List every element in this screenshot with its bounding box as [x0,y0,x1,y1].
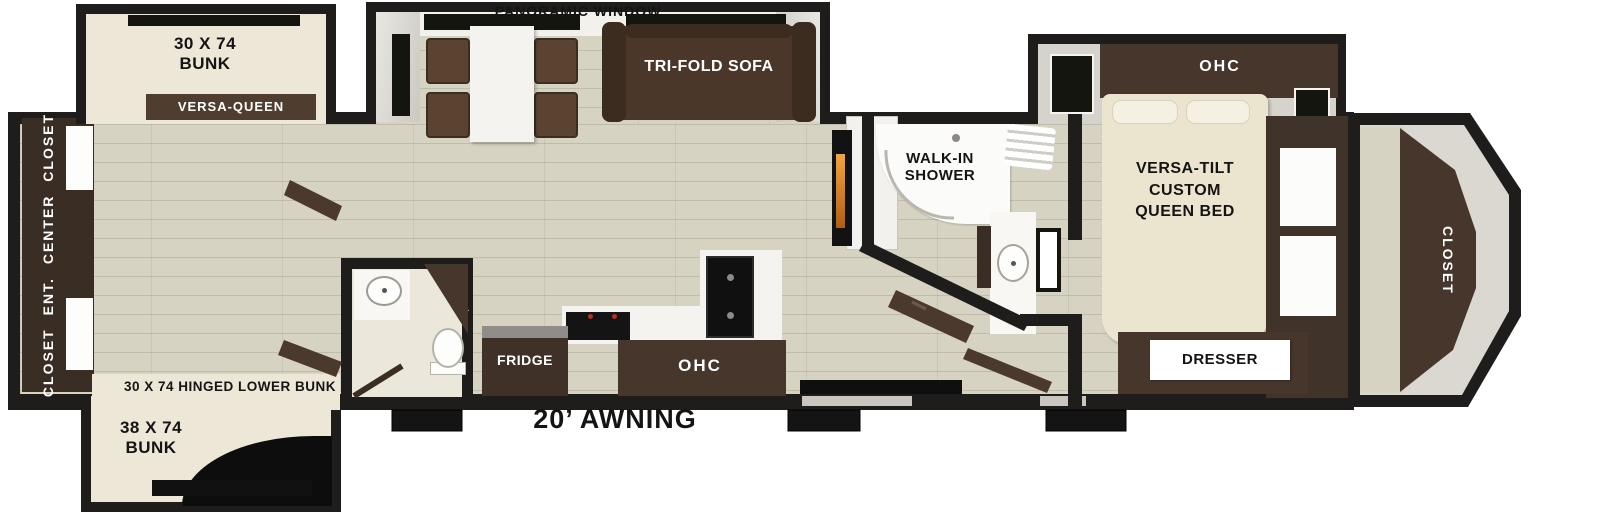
bunk-wedge-top [284,180,342,221]
bath-door [354,366,402,396]
front-closet-label: CLOSET [1432,200,1456,320]
bunk-wedge-bottom [278,340,342,377]
step-bench-2 [963,348,1052,393]
bath-wall-left [862,116,874,246]
entry-step-1 [392,410,462,431]
bedroom-wall-upper [1068,114,1082,240]
bedroom-wall-lower [1068,314,1082,406]
front-cap-floor [1360,127,1404,393]
awning-label: 20’ AWNING [490,404,740,435]
entry-step-2 [788,410,860,431]
structural-overlay [0,0,1600,519]
shower-door-arc [886,150,954,218]
pantry-cabinet [424,264,468,334]
floorplan: CLOSET ENT. CENTER CLOSET 30 X 74 BUNK V… [0,0,1600,519]
entry-step-3 [1046,410,1126,431]
